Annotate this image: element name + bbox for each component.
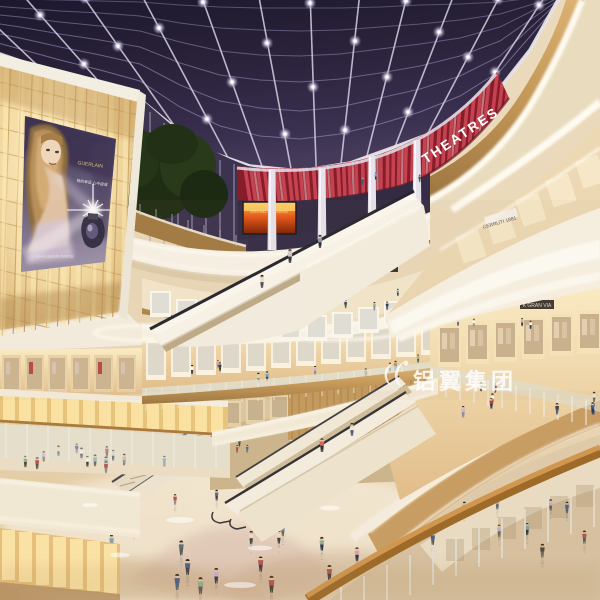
svg-text:铝翼集团: 铝翼集团 [413, 369, 517, 394]
